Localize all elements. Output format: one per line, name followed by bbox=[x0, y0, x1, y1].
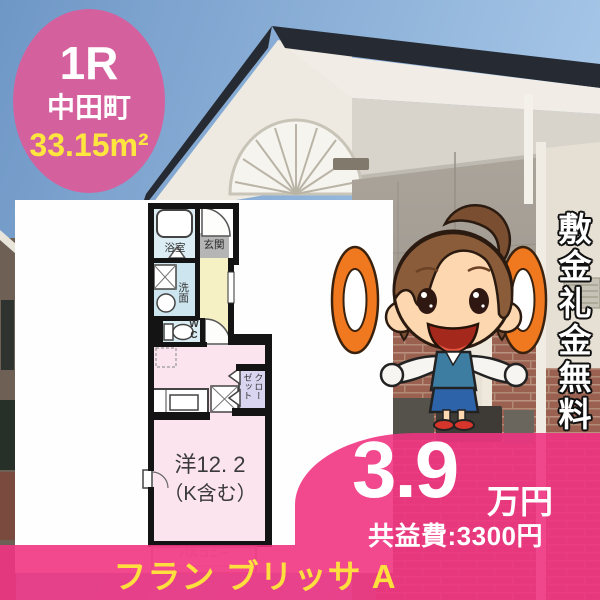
hand-left bbox=[381, 364, 403, 386]
property-badge: 1R 中田町 33.15m² bbox=[13, 9, 165, 193]
eye-left bbox=[417, 288, 437, 314]
mascot-body bbox=[381, 352, 527, 430]
hand-right bbox=[505, 364, 527, 386]
shoe-right bbox=[454, 420, 474, 430]
no-deposit-banner: 敷金礼金無料 bbox=[549, 212, 589, 437]
rent-amount: 3.9 bbox=[352, 430, 457, 510]
eye-right bbox=[469, 288, 489, 314]
property-name: フラン ブリッサ A 105 bbox=[105, 550, 405, 600]
common-fee: 共益費:3300円 bbox=[368, 516, 543, 553]
badge-location: 中田町 bbox=[47, 90, 131, 126]
listing-card: 浴室 玄関 洗面 WC クロー ゼット 洋12. 2 （K含む） バルコニー bbox=[0, 0, 600, 600]
badge-layout-type: 1R bbox=[60, 40, 119, 86]
skirt bbox=[430, 388, 478, 412]
badge-area: 33.15m² bbox=[29, 126, 148, 164]
